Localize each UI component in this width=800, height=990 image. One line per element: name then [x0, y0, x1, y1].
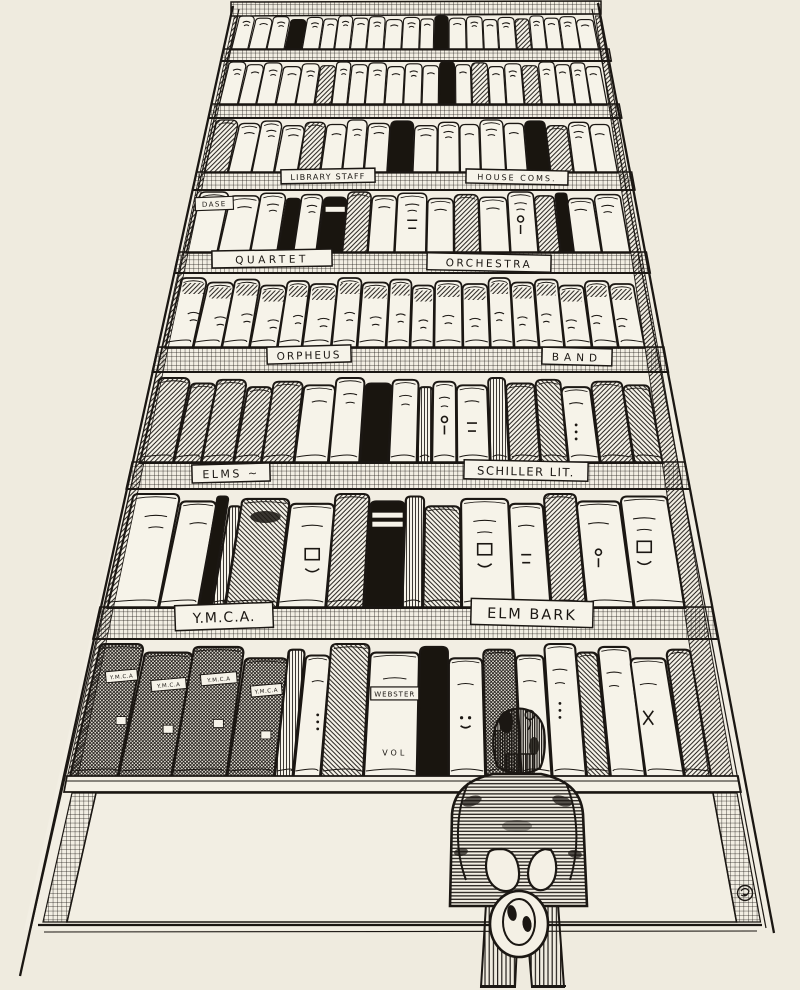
shelf-label-quartet: QUARTET — [212, 249, 332, 268]
shelf-label-text: ORCHESTRA — [446, 257, 533, 271]
shelf-row-3 — [204, 120, 618, 173]
book-spine — [395, 193, 427, 253]
shelf-label-house-coms: HOUSE COMS. — [466, 169, 568, 185]
book-spine — [480, 120, 506, 173]
person-hair-shadow — [529, 737, 539, 755]
book-spine — [385, 67, 405, 105]
shelf-label-text: LIBRARY STAFF — [290, 172, 365, 182]
shelf-label-orpheus: ORPHEUS — [267, 345, 351, 364]
person-hat — [490, 891, 548, 957]
shelf-label-text: BAND — [552, 351, 603, 364]
book-spine — [438, 122, 460, 173]
shelf-label-text: ELMS ~ — [202, 467, 260, 481]
book-spine — [449, 18, 466, 50]
base-panel — [67, 793, 737, 922]
spine-label-ymca: Y.M.C.A — [105, 669, 137, 683]
spine-label-ymca: Y.M.C.A — [250, 683, 282, 697]
book-spine — [483, 20, 499, 50]
book-spine — [508, 192, 538, 253]
spine-label-text: WEBSTER — [374, 690, 415, 698]
book-spine — [364, 653, 419, 777]
bookcase-drawing: LIBRARY STAFF HOUSE COMS. QUARTET ORCHES… — [0, 0, 800, 990]
book-spine — [439, 62, 455, 105]
shelf-row-2 — [219, 62, 607, 105]
spine-label-ymca: Y.M.C.A — [151, 677, 187, 691]
shelf-label-orchestra: ORCHESTRA — [427, 253, 551, 273]
shelf-label-text: ORPHEUS — [277, 349, 342, 363]
shelf-row-5 — [165, 278, 645, 348]
book-spine — [367, 17, 386, 50]
book-spine — [358, 283, 389, 349]
book-spine — [467, 17, 484, 50]
book-spine — [472, 63, 490, 105]
book-spine — [432, 382, 456, 463]
spine-label-text: VOL — [382, 749, 407, 758]
book-spine — [460, 125, 481, 174]
shelf-label-ymca: Y.M.C.A. — [175, 602, 274, 630]
book-spine — [365, 63, 386, 105]
book-spine — [404, 64, 423, 105]
bookcase-base — [38, 776, 762, 932]
book-spine — [402, 17, 420, 50]
book-spine — [457, 385, 490, 463]
shelf-label-elm-bark: ELM BARK — [471, 598, 594, 627]
spine-label-text: DASE — [202, 200, 227, 209]
book-spine — [488, 67, 506, 105]
book-spine — [479, 197, 510, 253]
book-spine — [411, 286, 435, 349]
book-spine — [418, 387, 433, 463]
book-spine — [368, 196, 397, 253]
book-spine — [389, 380, 419, 463]
book-spine — [364, 123, 390, 173]
shelf-row-6 — [140, 378, 663, 463]
shelf-row-1 — [231, 16, 598, 50]
book-spine — [489, 278, 514, 348]
illustration: LIBRARY STAFF HOUSE COMS. QUARTET ORCHES… — [0, 0, 800, 990]
shelf-label-elms: ELMS ~ — [192, 463, 270, 483]
shelf-label-text: QUARTET — [235, 253, 309, 266]
person-hair-shadow — [499, 711, 513, 733]
book-spine — [434, 16, 448, 50]
book-spine — [456, 65, 472, 105]
book-spine — [434, 281, 462, 348]
shelf-label-band: BAND — [542, 347, 612, 366]
book-spine — [515, 19, 531, 50]
book-spine — [449, 658, 485, 777]
book-spine — [364, 501, 405, 608]
shelf-label-library-staff: LIBRARY STAFF — [281, 168, 375, 184]
person-jacket — [450, 774, 587, 906]
book-spine — [498, 17, 517, 50]
book-spine — [388, 121, 414, 173]
book-spine — [506, 384, 540, 464]
spine-label-dase: DASE — [195, 196, 233, 210]
book-spine — [461, 499, 513, 608]
shelf-label-text: ELM BARK — [487, 606, 577, 624]
book-spine — [423, 506, 461, 608]
top-board — [231, 1, 601, 16]
shelf-band — [209, 104, 622, 118]
book-spine — [505, 64, 524, 105]
book-spine — [504, 123, 528, 173]
book-spine — [384, 20, 402, 50]
shelf-label-text: SCHILLER LIT. — [477, 463, 575, 479]
shelf-label-text: Y.M.C.A. — [191, 609, 255, 627]
book-spine — [422, 66, 439, 105]
book-spine — [413, 126, 437, 173]
book-spine — [360, 384, 391, 464]
book-spine — [427, 199, 454, 254]
book-spine — [463, 284, 490, 348]
book-spine — [454, 195, 480, 253]
shelf-row-4 — [186, 192, 630, 253]
book-spine — [387, 280, 412, 349]
shelf-label-schiller-lit: SCHILLER LIT. — [464, 460, 588, 482]
person-hand-left — [486, 849, 519, 891]
book-spine — [420, 19, 434, 50]
shelf-band — [221, 49, 611, 61]
shelf-row-7 — [107, 494, 685, 608]
book-spine — [418, 647, 448, 777]
book-spine — [402, 497, 424, 609]
shelf-label-text: HOUSE COMS. — [477, 173, 556, 184]
